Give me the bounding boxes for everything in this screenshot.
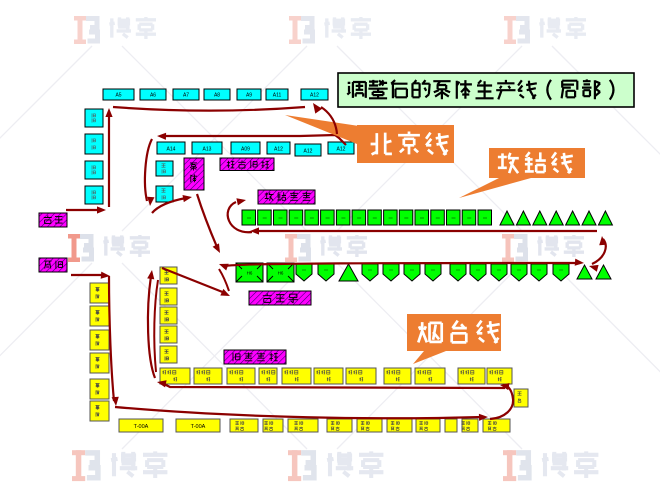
svg-text:A14: A14 — [167, 147, 176, 153]
svg-text:A13: A13 — [203, 147, 212, 153]
svg-text:H6: H6 — [247, 271, 253, 276]
svg-text:A9: A9 — [246, 93, 252, 99]
svg-text:A12: A12 — [310, 93, 319, 99]
svg-text:H6: H6 — [278, 271, 284, 276]
svg-text:T-00A: T-00A — [191, 424, 206, 430]
svg-text:A12: A12 — [274, 147, 283, 153]
svg-text:A12: A12 — [304, 149, 313, 155]
svg-text:A7: A7 — [183, 93, 189, 99]
svg-text:A5: A5 — [115, 93, 121, 99]
svg-text:A6: A6 — [150, 93, 156, 99]
svg-text:T-00A: T-00A — [134, 424, 149, 430]
svg-text:A8: A8 — [214, 93, 220, 99]
svg-text:A12: A12 — [337, 147, 346, 153]
svg-text:A09: A09 — [241, 147, 250, 153]
svg-text:A11: A11 — [273, 93, 282, 99]
